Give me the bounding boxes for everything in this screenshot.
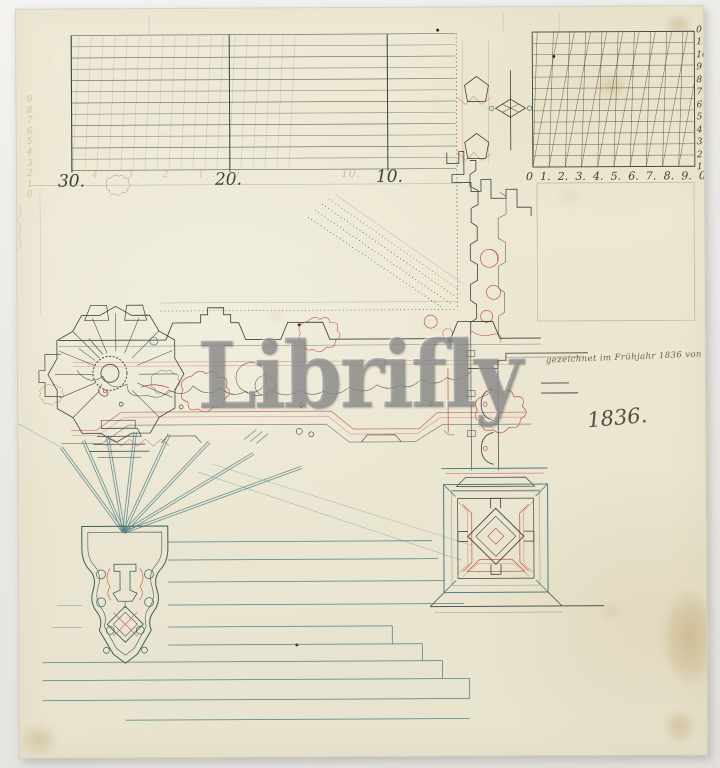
watermark-text: Librifly [197, 320, 521, 430]
wheel-rosette [39, 305, 185, 458]
crocket-ornament-strip [446, 40, 532, 216]
scanned-drawing-photo: Librifly 30. 20. 10. 10. 4. 3. 2. 1. 0 9… [0, 0, 720, 768]
tick-label: 2 [697, 151, 708, 160]
left-scale-grid [15, 13, 561, 315]
red-edge-smudge [15, 743, 18, 755]
tick-label: 9. [681, 169, 692, 182]
tick-label: 10 [696, 51, 708, 60]
corner-molding-profile [423, 160, 506, 342]
pendant-shield [82, 526, 169, 663]
tick-label: 5. [611, 170, 622, 183]
ghost-scale-label: 10. [341, 166, 360, 180]
tick-label: 2. [558, 170, 569, 183]
tick-label: 0 [696, 26, 708, 35]
tick-label: 8 [696, 76, 708, 85]
tick-label: 4. [593, 170, 604, 183]
drawing-surface: Librifly 30. 20. 10. 10. 4. 3. 2. 1. 0 9… [15, 5, 708, 759]
tick-label: 9 [696, 64, 708, 73]
ghost-offset-row: 4. 3. 2. 1. 0 [92, 170, 248, 181]
diagonal-scale-right-labels: 01110987654321 [696, 26, 708, 172]
scale-label-10: 10. [376, 167, 403, 187]
tick-label: 6. [628, 170, 639, 183]
tick-label: 4 [697, 126, 708, 135]
margin-pencil-digits: 9 8 7 6 5 4 3 2 1 0 [26, 95, 32, 201]
tick-label: 3 [697, 138, 708, 147]
tick-label: 5 [697, 113, 708, 122]
tick-label: 7 [696, 88, 707, 97]
tick-label: 7. [646, 169, 657, 182]
scale-label-30: 30. [58, 171, 85, 191]
paper-sheet: Librifly 30. 20. 10. 10. 4. 3. 2. 1. 0 9… [15, 5, 708, 759]
projection-lines [160, 194, 463, 311]
diagonal-scale-bottom-labels: 01.2.3.4.5.6.7.8.9.0 [526, 169, 706, 183]
tick-label: 8. [664, 169, 675, 182]
tick-label: 1. [540, 170, 551, 183]
tick-label: 3. [575, 170, 586, 183]
tick-label: 11 [696, 39, 708, 48]
coffer-panel [430, 484, 605, 613]
tick-label: 6 [697, 101, 708, 110]
tick-label: 1 [697, 163, 708, 172]
tick-label: 0 [526, 170, 533, 183]
